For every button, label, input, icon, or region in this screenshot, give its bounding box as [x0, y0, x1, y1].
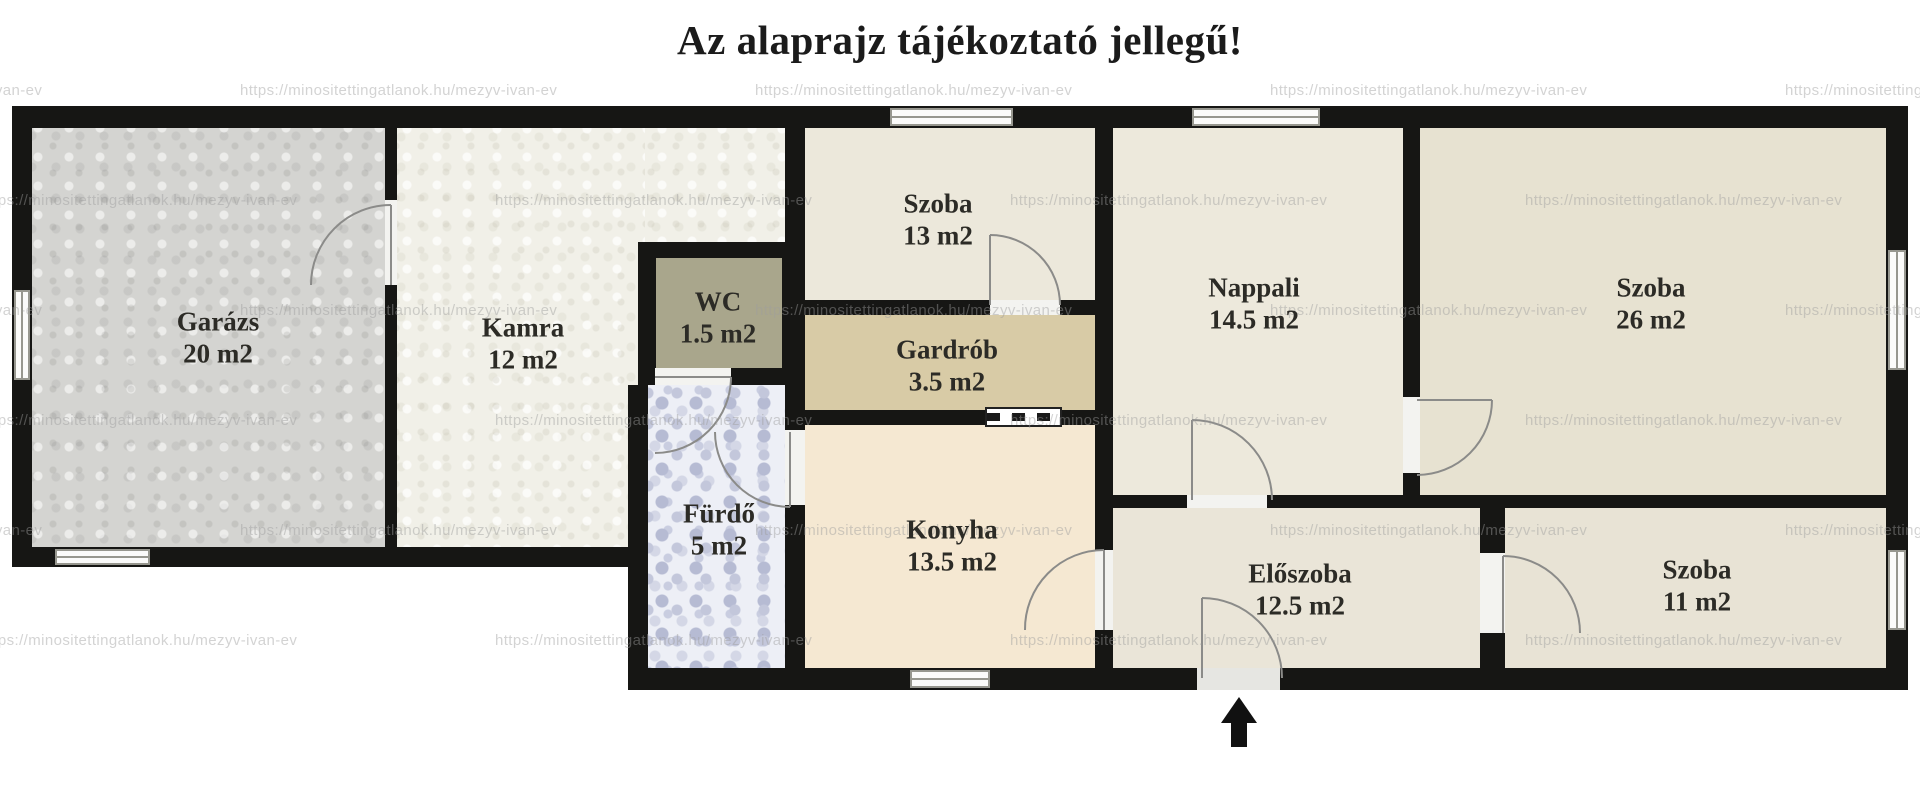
room-label-szoba-26: Szoba26 m2: [1616, 272, 1686, 337]
entrance-arrow-icon: [1221, 697, 1257, 747]
room-label-kamra: Kamra12 m2: [482, 312, 564, 377]
floorplan-canvas: Az alaprajz tájékoztató jellegű!: [0, 0, 1920, 798]
room-label-eloszoba: Előszoba12.5 m2: [1248, 558, 1352, 623]
arrow-shaft: [1231, 723, 1247, 747]
arrow-head: [1221, 697, 1257, 723]
room-label-furdo: Fürdő5 m2: [683, 498, 755, 563]
room-label-konyha: Konyha13.5 m2: [906, 514, 998, 579]
room-label-wc: WC1.5 m2: [680, 286, 757, 351]
room-label-gardrob: Gardrób3.5 m2: [896, 334, 998, 399]
door-swing-arcs: [0, 0, 1920, 798]
room-label-garazs: Garázs20 m2: [177, 306, 259, 371]
room-label-szoba-13: Szoba13 m2: [903, 188, 973, 253]
room-label-szoba-11: Szoba11 m2: [1662, 554, 1731, 619]
room-label-nappali: Nappali14.5 m2: [1208, 272, 1300, 337]
